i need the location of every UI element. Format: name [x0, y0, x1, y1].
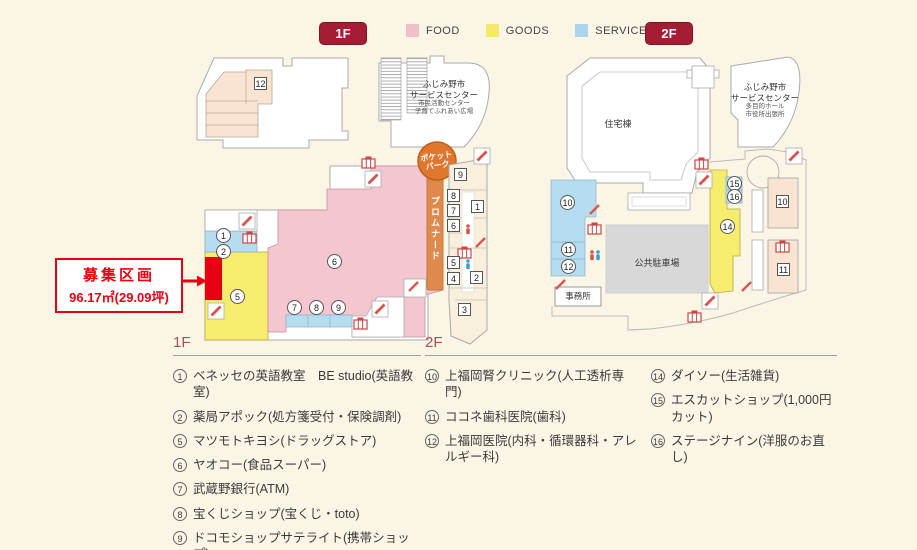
tenant-name: ドコモショップサテライト(携帯ショップ) — [193, 530, 421, 550]
restroom-icon-male — [466, 259, 470, 269]
unit-marker-1f-s4: 4 — [447, 272, 460, 285]
vacancy-callout-title: 募集区画 — [58, 264, 180, 285]
service-area-units789 — [286, 315, 352, 327]
directory-1f: 1F 1 ベネッセの英語教室 BE studio(英語教室) 2 薬局アポック(… — [173, 334, 421, 550]
unit-number-badge: 11 — [425, 410, 439, 424]
unit-number-badge: 7 — [173, 482, 187, 496]
stairs-icon — [239, 213, 255, 229]
floor-2f-badge: 2F — [645, 22, 693, 45]
restroom-icon-female — [590, 250, 594, 260]
vacancy-callout-area: 96.17㎡(29.09坪) — [58, 287, 180, 306]
floor-1f-badge: 1F — [319, 22, 367, 45]
unit-number-badge: 16 — [651, 434, 665, 448]
unit-marker-2f-c12: 12 — [561, 259, 576, 274]
unit-marker-1f-s9: 9 — [454, 168, 467, 181]
tenant-name: エスカットショップ(1,000円カット) — [671, 392, 837, 425]
tenant-name: ベネッセの英語教室 BE studio(英語教室) — [193, 368, 421, 401]
unit-number-badge: 1 — [173, 369, 187, 383]
restroom-icon-female — [466, 224, 470, 234]
unit-marker-1f-c2: 2 — [216, 244, 231, 259]
unit-marker-1f-s1: 1 — [471, 200, 484, 213]
elevator-icon — [688, 311, 701, 323]
unit-marker-1f-c5: 5 — [230, 289, 245, 304]
unit-marker-1f-c1: 1 — [216, 228, 231, 243]
unit-marker-2f-c14: 14 — [720, 219, 735, 234]
list-item: 16 ステージナイン(洋服のお直し) — [651, 433, 837, 466]
unit-marker-2f-c11: 11 — [561, 242, 576, 257]
service-center-1f-line4: 子育てふれあい広場 — [396, 108, 492, 116]
tenant-name: 薬局アポック(処方箋受付・保険調剤) — [193, 409, 401, 425]
unit-marker-1f-s12: 12 — [254, 77, 267, 90]
legend: FOOD GOODS SERVICE — [406, 24, 647, 37]
list-item: 11 ココネ歯科医院(歯科) — [425, 409, 637, 425]
list-item: 7 武蔵野銀行(ATM) — [173, 481, 421, 497]
unit-marker-2f-s10: 10 — [776, 195, 789, 208]
stairs-icon — [786, 148, 802, 164]
stairs-icon — [742, 282, 751, 291]
directory-1f-heading: 1F — [173, 334, 421, 351]
unit-marker-1f-c9: 9 — [331, 300, 346, 315]
residential-label: 住宅棟 — [592, 119, 644, 130]
list-item: 2 薬局アポック(処方箋受付・保険調剤) — [173, 409, 421, 425]
tenant-name: 宝くじショップ(宝くじ・toto) — [193, 506, 360, 522]
vacant-unit-highlight — [205, 257, 222, 300]
unit-marker-1f-c7: 7 — [287, 300, 302, 315]
unit-marker-2f-s11: 11 — [777, 263, 790, 276]
unit-marker-1f-s8: 8 — [447, 189, 460, 202]
list-item: 12 上福岡医院(内科・循環器科・アレルギー科) — [425, 433, 637, 466]
legend-item-food: FOOD — [406, 24, 460, 37]
stairs-icon — [372, 301, 388, 317]
stairs-icon — [702, 293, 718, 309]
restroom-icon-male — [596, 250, 600, 260]
tenant-name: ココネ歯科医院(歯科) — [445, 409, 566, 425]
unit-number-badge: 12 — [425, 434, 439, 448]
goods-color-swatch — [486, 24, 499, 37]
service-center-1f-line2: サービスセンター — [396, 90, 492, 101]
service-center-2f-line1: ふじみ野市 — [722, 82, 808, 93]
page-background: 1F FOOD GOODS SERVICE 2F 募集区画 96.17㎡(29.… — [0, 0, 917, 550]
list-item: 14 ダイソー(生活雑貨) — [651, 368, 837, 384]
divider — [425, 355, 837, 356]
unit-number-badge: 9 — [173, 531, 187, 545]
service-center-1f-line1: ふじみ野市 — [396, 79, 492, 90]
stairs-icon — [474, 148, 490, 164]
list-item: 10 上福岡腎クリニック(人工透析専門) — [425, 368, 637, 401]
office-label: 事務所 — [556, 291, 600, 302]
stairs-icon — [365, 171, 381, 187]
tenant-name: ヤオコー(食品スーパー) — [193, 457, 326, 473]
unit-marker-1f-s5: 5 — [447, 256, 460, 269]
unit-marker-1f-s2: 2 — [470, 271, 483, 284]
tenant-name: 武蔵野銀行(ATM) — [193, 481, 289, 497]
unit-number-badge: 5 — [173, 434, 187, 448]
stairs-icon — [208, 303, 224, 319]
food-color-swatch — [406, 24, 419, 37]
unit-marker-1f-c6: 6 — [327, 254, 342, 269]
unit-marker-1f-s3: 3 — [458, 303, 471, 316]
elevator-icon — [362, 157, 375, 169]
promenade-label: プロムナード — [427, 178, 443, 280]
divider — [173, 355, 421, 356]
tenant-name: 上福岡医院(内科・循環器科・アレルギー科) — [445, 433, 637, 466]
directory-2f-col1: 10 上福岡腎クリニック(人工透析専門) 11 ココネ歯科医院(歯科) 12 上… — [425, 368, 637, 473]
unit-number-badge: 2 — [173, 410, 187, 424]
unit-marker-1f-s7: 7 — [447, 204, 460, 217]
list-item: 8 宝くじショップ(宝くじ・toto) — [173, 506, 421, 522]
list-item: 9 ドコモショップサテライト(携帯ショップ) — [173, 530, 421, 550]
tenant-name: マツモトキヨシ(ドラッグストア) — [193, 433, 376, 449]
vacancy-callout: 募集区画 96.17㎡(29.09坪) — [55, 258, 183, 313]
directory-2f: 2F 10 上福岡腎クリニック(人工透析専門) 11 ココネ歯科医院(歯科) 1… — [425, 334, 837, 473]
tenant-name: ダイソー(生活雑貨) — [671, 368, 779, 384]
list-item: 1 ベネッセの英語教室 BE studio(英語教室) — [173, 368, 421, 401]
elevator-icon — [588, 223, 601, 235]
unit-number-badge: 6 — [173, 458, 187, 472]
legend-item-service: SERVICE — [575, 24, 647, 37]
tenant-name: 上福岡腎クリニック(人工透析専門) — [445, 368, 637, 401]
unit-marker-2f-c10: 10 — [560, 195, 575, 210]
unit-number-badge: 8 — [173, 507, 187, 521]
unit-number-badge: 15 — [651, 393, 665, 407]
unit-marker-1f-s6: 6 — [447, 219, 460, 232]
tenant-name: ステージナイン(洋服のお直し) — [671, 433, 837, 466]
parking-label: 公共駐車場 — [607, 258, 707, 269]
unit-marker-1f-c8: 8 — [309, 300, 324, 315]
stairs-icon — [696, 172, 712, 188]
legend-label-service: SERVICE — [595, 25, 647, 37]
legend-label-food: FOOD — [426, 25, 460, 37]
list-item: 15 エスカットショップ(1,000円カット) — [651, 392, 837, 425]
unit-marker-2f-c16: 16 — [727, 189, 742, 204]
unit-number-badge: 14 — [651, 369, 665, 383]
service-color-swatch — [575, 24, 588, 37]
unit-number-badge: 10 — [425, 369, 439, 383]
service-center-1f-label: ふじみ野市 サービスセンター 市民活動センター 子育てふれあい広場 — [396, 79, 492, 117]
service-center-2f-label: ふじみ野市 サービスセンター 多目的ホール 市役所出張所 — [722, 82, 808, 120]
legend-item-goods: GOODS — [486, 24, 549, 37]
service-center-2f-line4: 市役所出張所 — [722, 111, 808, 119]
list-item: 5 マツモトキヨシ(ドラッグストア) — [173, 433, 421, 449]
service-center-2f-line2: サービスセンター — [722, 93, 808, 104]
directory-2f-col2: 14 ダイソー(生活雑貨) 15 エスカットショップ(1,000円カット) 16… — [651, 368, 837, 473]
legend-label-goods: GOODS — [506, 25, 549, 37]
directory-2f-heading: 2F — [425, 334, 837, 351]
list-item: 6 ヤオコー(食品スーパー) — [173, 457, 421, 473]
